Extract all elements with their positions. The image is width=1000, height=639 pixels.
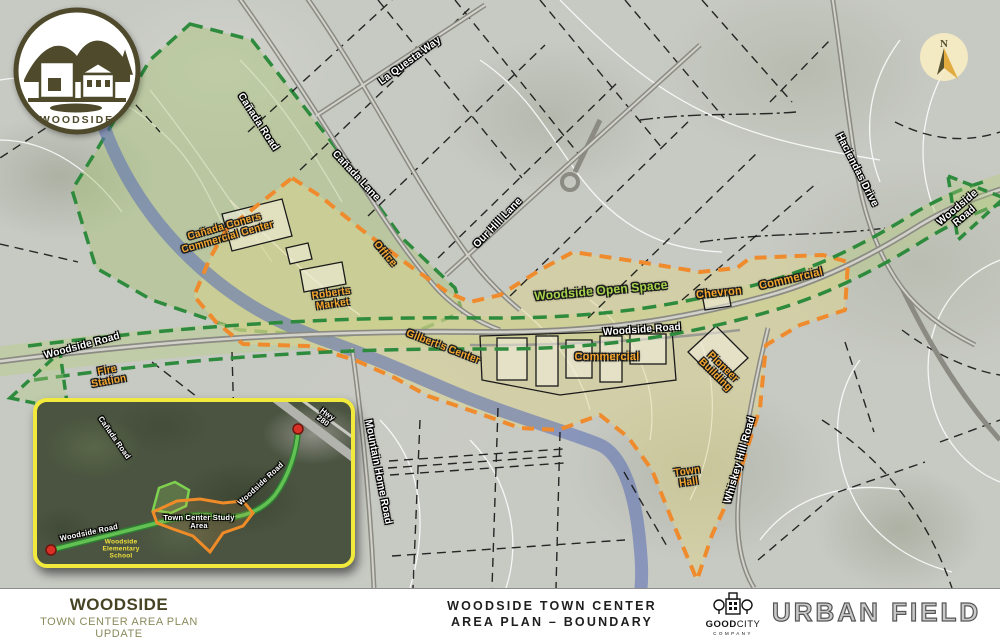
goodcity-logo: GOODCITY COMPANY [704, 591, 762, 636]
main-map: Cañada Road Cañada Lane La Questa Way Ou… [0, 0, 1000, 588]
title-block: WOODSIDE TOWN CENTER AREA PLAN UPDATE 10… [0, 588, 1000, 639]
sheet-title-line1: WOODSIDE TOWN CENTER [440, 599, 664, 615]
footer-sheet-title: WOODSIDE TOWN CENTER AREA PLAN – BOUNDAR… [440, 599, 664, 630]
inset-endpoint-east [293, 424, 303, 434]
logo-wordmark: WOODSIDE [40, 114, 114, 126]
inset-study-boundary [153, 499, 253, 552]
footer-project-title: WOODSIDE TOWN CENTER AREA PLAN UPDATE [23, 595, 215, 639]
urban-field-logo: URBAN FIELD [772, 597, 990, 628]
plan-sheet: Cañada Road Cañada Lane La Questa Way Ou… [0, 0, 1000, 639]
goodcity-company-label: COMPANY [704, 631, 762, 636]
inset-endpoint-west [46, 545, 56, 555]
north-arrow-icon: N [918, 31, 970, 83]
footer-project-subtitle: TOWN CENTER AREA PLAN UPDATE [23, 616, 215, 639]
goodcity-building-icon [709, 591, 757, 615]
woodside-town-logo: WOODSIDE [12, 6, 142, 136]
footer-city-name: WOODSIDE [23, 595, 215, 615]
goodcity-wordmark: GOODCITY [704, 619, 762, 630]
inset-locator-map: Cañada Road Hwy 280 Woodside Road Woodsi… [33, 398, 355, 568]
sheet-title-line2: AREA PLAN – BOUNDARY [440, 615, 664, 631]
boundary-lines-dashdot [640, 112, 885, 242]
inset-graphics [37, 402, 355, 568]
